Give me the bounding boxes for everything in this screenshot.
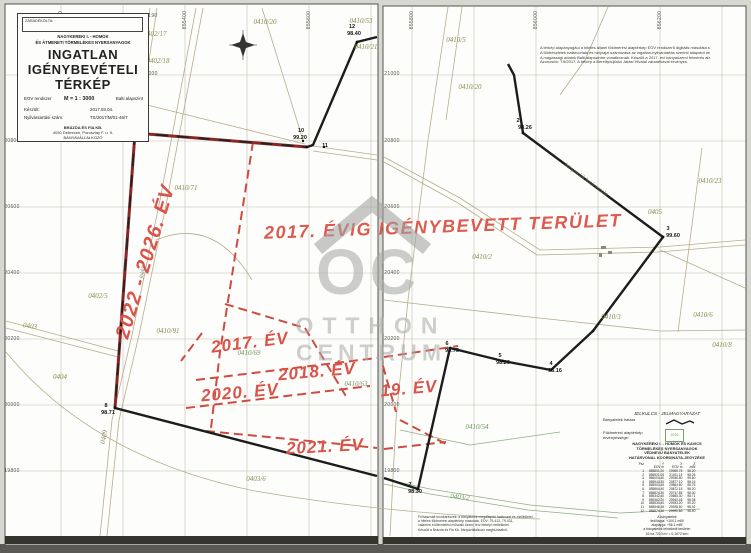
watermark-name-line: CENTRUM bbox=[296, 340, 446, 367]
scanned-mining-map-page: 2017. ÉVIG IGÉNYBEVETT TERÜLET2022 - 202… bbox=[0, 0, 751, 553]
watermark-name-line: OTTHON bbox=[295, 313, 446, 340]
otthon-centrum-watermark: OC OTTHON CENTRUM bbox=[0, 0, 751, 553]
watermark-monogram: OC bbox=[316, 235, 420, 309]
